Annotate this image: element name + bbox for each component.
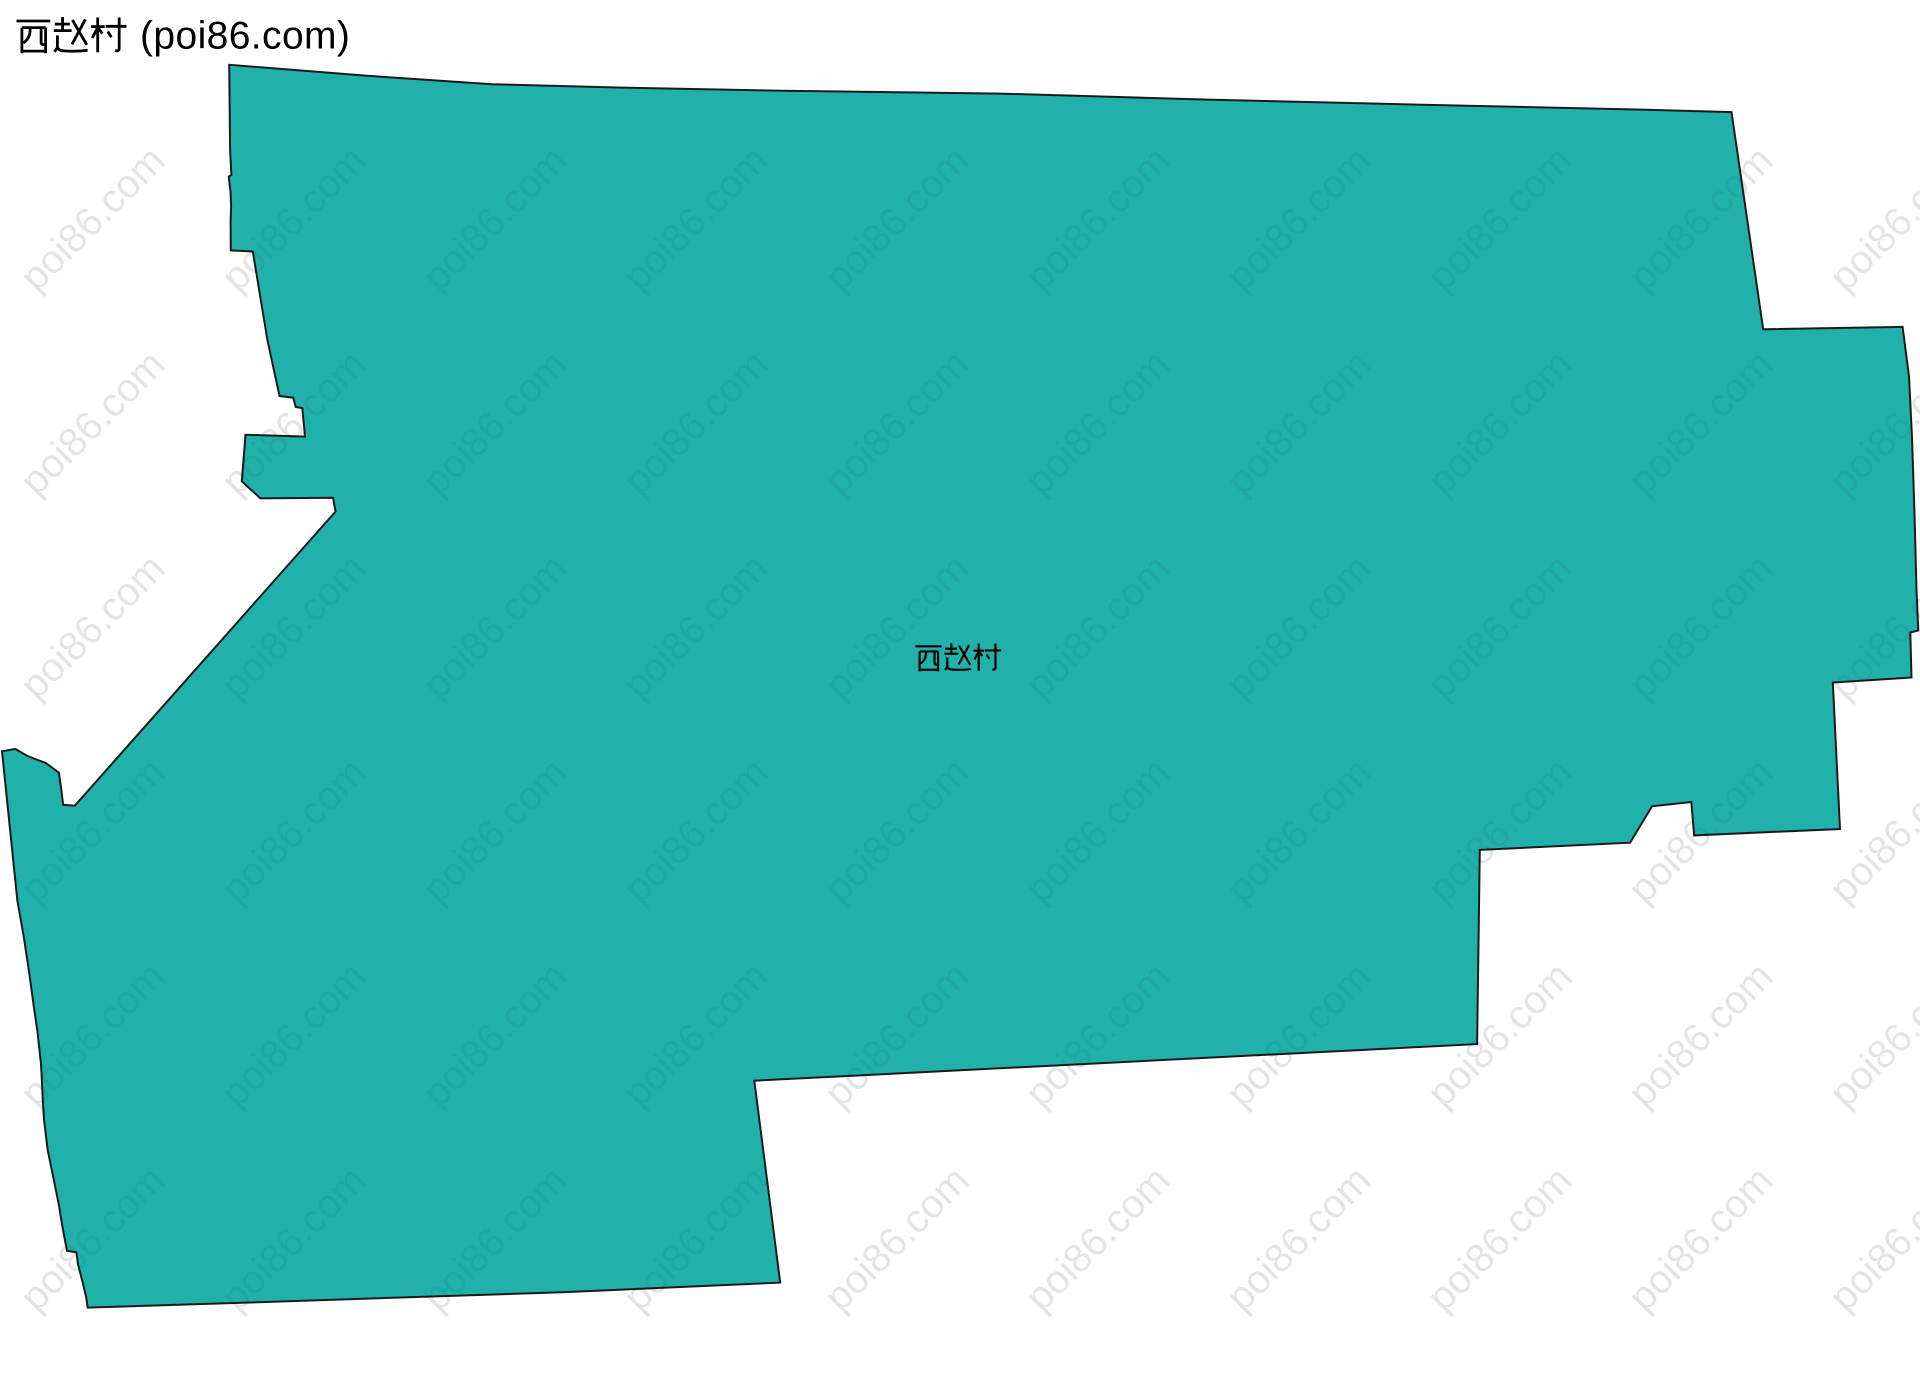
svg-text:poi86.com: poi86.com xyxy=(816,1158,978,1320)
svg-text:poi86.com: poi86.com xyxy=(1620,954,1782,1116)
svg-text:poi86.com: poi86.com xyxy=(1419,1158,1581,1320)
svg-text:poi86.com: poi86.com xyxy=(1821,138,1920,300)
svg-text:poi86.com: poi86.com xyxy=(12,546,174,708)
svg-text:poi86.com: poi86.com xyxy=(12,342,174,504)
svg-text:poi86.com: poi86.com xyxy=(1821,954,1920,1116)
svg-text:poi86.com: poi86.com xyxy=(12,138,174,300)
svg-text:(poi86.com): (poi86.com) xyxy=(140,14,350,57)
svg-text:poi86.com: poi86.com xyxy=(1620,1158,1782,1320)
svg-text:poi86.com: poi86.com xyxy=(1017,1158,1179,1320)
svg-text:poi86.com: poi86.com xyxy=(1218,1158,1380,1320)
svg-text:poi86.com: poi86.com xyxy=(1821,1158,1920,1320)
